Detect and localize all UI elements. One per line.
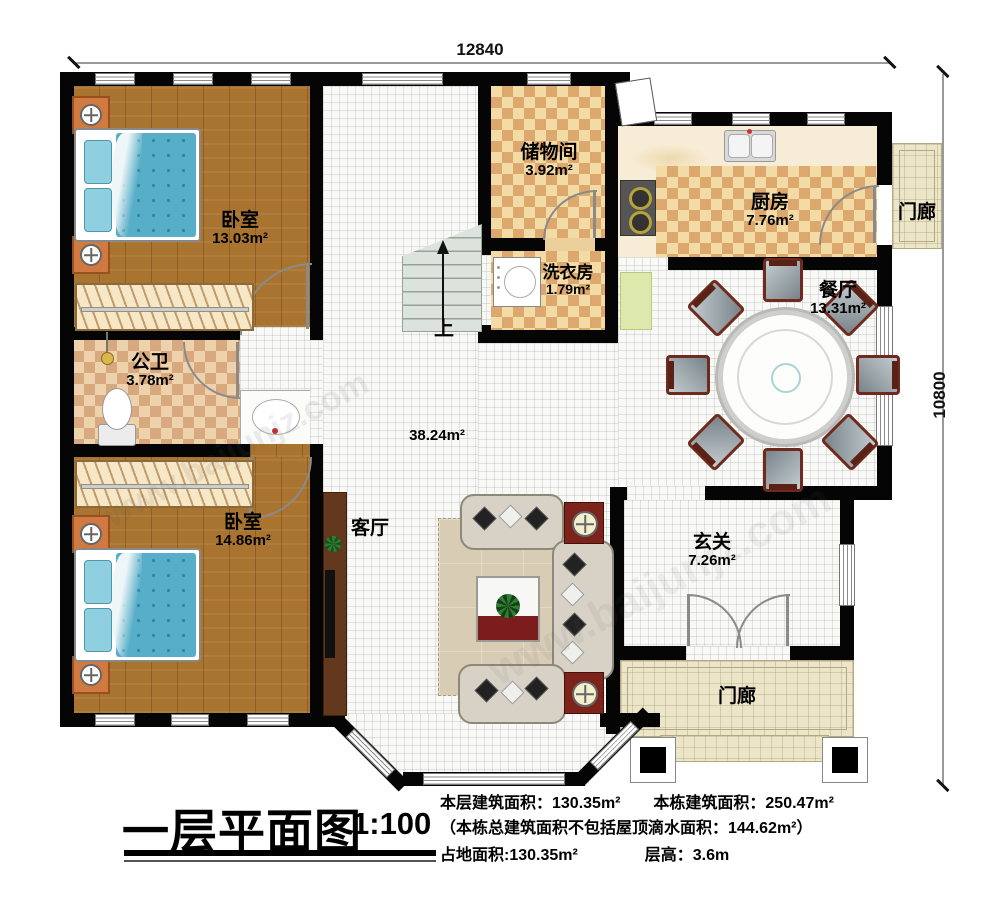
toilet-bowl [102, 388, 132, 430]
passage-floor [627, 486, 705, 500]
dimension-right-value: 10800 [930, 355, 950, 435]
door-leaf-bath [236, 342, 239, 397]
window-kitchen-c [808, 114, 844, 124]
window-bedroom1-b [174, 74, 212, 84]
dining-chair [763, 448, 803, 492]
porch-right-floor [892, 143, 942, 249]
dimension-top-value: 12840 [430, 40, 530, 60]
wall-bath-south [60, 444, 250, 457]
vanity-faucet [272, 428, 278, 434]
window-bedroom1-c [252, 74, 290, 84]
title-info-row2: （本栋总建筑面积不包括屋顶滴水面积：144.62m²） [440, 817, 980, 842]
wall-kitchen-east-b [877, 245, 892, 270]
washing-machine [493, 257, 541, 307]
kitchen-sink [724, 130, 776, 162]
wall-storage-divider [491, 238, 545, 251]
window-kitchen-a [655, 114, 691, 124]
plant-small [325, 536, 341, 552]
area-this-floor: 本层建筑面积：130.35m² [440, 795, 621, 812]
wall-foyer-east-a [840, 500, 854, 545]
flue-symbol [615, 77, 657, 126]
label-laundry: 洗衣房1.79m² [543, 263, 594, 298]
door-leaf-kitchen-porch [873, 187, 876, 243]
label-storage: 储物间3.92m² [520, 142, 577, 180]
plant-large [496, 594, 520, 618]
stove [620, 180, 656, 236]
label-living-area: 38.24m² [409, 428, 465, 445]
sofa-right [552, 540, 614, 680]
label-stairs-up: 上 [434, 318, 454, 340]
dining-chair [856, 355, 900, 395]
wall-foyer-south-l [610, 646, 686, 660]
floor-height: 层高：3.6m [645, 847, 729, 864]
window-bedroom2-a [96, 715, 134, 725]
stairs-arrow-line [442, 252, 444, 322]
side-table [564, 502, 604, 544]
label-porch-bottom: 门廊 [718, 686, 756, 707]
plan-scale: 1:100 [352, 806, 431, 842]
dimension-line-top [74, 62, 890, 64]
bay-window-bottom [424, 774, 564, 784]
bed-bedroom1 [74, 128, 201, 242]
door-leaf-bedroom1 [306, 263, 309, 329]
wall-bay-bottom [403, 772, 585, 786]
window-storage [528, 74, 570, 84]
wall-foyer-south-r [790, 646, 854, 660]
dining-mat [620, 272, 652, 330]
sofa-bottom [458, 664, 566, 724]
doorway-kitchen [618, 257, 668, 270]
stairs-arrow-head [437, 240, 449, 254]
wall-left [60, 72, 74, 727]
wall-foyer-nw-stub [610, 487, 627, 500]
bath-light-cord [106, 332, 108, 354]
dining-table [718, 310, 852, 444]
wall-kitchen-east-a [877, 112, 892, 185]
label-kitchen: 厨房7.76m² [746, 192, 794, 230]
area-footprint: 占地面积:130.35m² [440, 847, 578, 864]
wall-laundry-south [478, 330, 618, 343]
window-bedroom2-b [172, 715, 208, 725]
label-bedroom2: 卧室14.86m² [215, 512, 271, 550]
title-rule-thin [124, 860, 436, 862]
area-building: 本栋建筑面积：250.47m² [653, 795, 834, 812]
wardrobe-bedroom2 [75, 460, 254, 508]
label-bedroom1: 卧室13.03m² [212, 210, 268, 248]
wall-bedrooms-east-b [310, 444, 323, 727]
label-dining: 餐厅13.31m² [810, 280, 866, 318]
label-bath: 公卫3.78m² [126, 352, 174, 390]
title-info-row3: 占地面积:130.35m² 层高：3.6m [440, 844, 980, 869]
porch-column-right [822, 737, 868, 783]
label-foyer: 玄关7.26m² [688, 532, 736, 570]
door-leaf-storage [593, 190, 596, 238]
window-bedroom2-c [248, 715, 288, 725]
floor-plan: www.baijunjz.com www.baijunjz.com 卧室13.0… [0, 0, 1000, 914]
coffee-table [476, 576, 540, 642]
title-info-row1: 本层建筑面积：130.35m² 本栋建筑面积：250.47m² [440, 792, 980, 817]
bath-nook-floor [240, 340, 310, 390]
wall-storage-east [605, 86, 618, 343]
window-kitchen-b [733, 114, 769, 124]
dining-chair [763, 258, 803, 302]
title-rule-thick [124, 850, 436, 856]
porch-step [660, 735, 829, 762]
window-bedroom1-a [96, 74, 134, 84]
label-living: 客厅 [351, 518, 389, 539]
dining-chair [666, 355, 710, 395]
doorway-bedroom2 [250, 444, 310, 457]
tv [325, 570, 335, 658]
side-table [564, 672, 604, 714]
nook-strip-floor [310, 340, 323, 444]
title-info: 本层建筑面积：130.35m² 本栋建筑面积：250.47m² （本栋总建筑面积… [440, 792, 980, 868]
porch-column-left [630, 737, 676, 783]
bed-bedroom2 [74, 548, 201, 662]
door-leaf-foyer-right [786, 594, 789, 646]
label-porch-right: 门廊 [898, 202, 936, 223]
wall-dining-east-a [877, 270, 892, 307]
sofa-top [460, 494, 564, 550]
area-note: （本栋总建筑面积不包括屋顶滴水面积：144.62m²） [440, 820, 813, 837]
window-foyer-east [840, 545, 854, 605]
bath-light [101, 352, 114, 365]
door-leaf-foyer-left [687, 594, 690, 646]
wardrobe-bedroom1 [75, 283, 254, 331]
doorway-foyer [686, 646, 790, 660]
window-living-north [363, 74, 442, 84]
